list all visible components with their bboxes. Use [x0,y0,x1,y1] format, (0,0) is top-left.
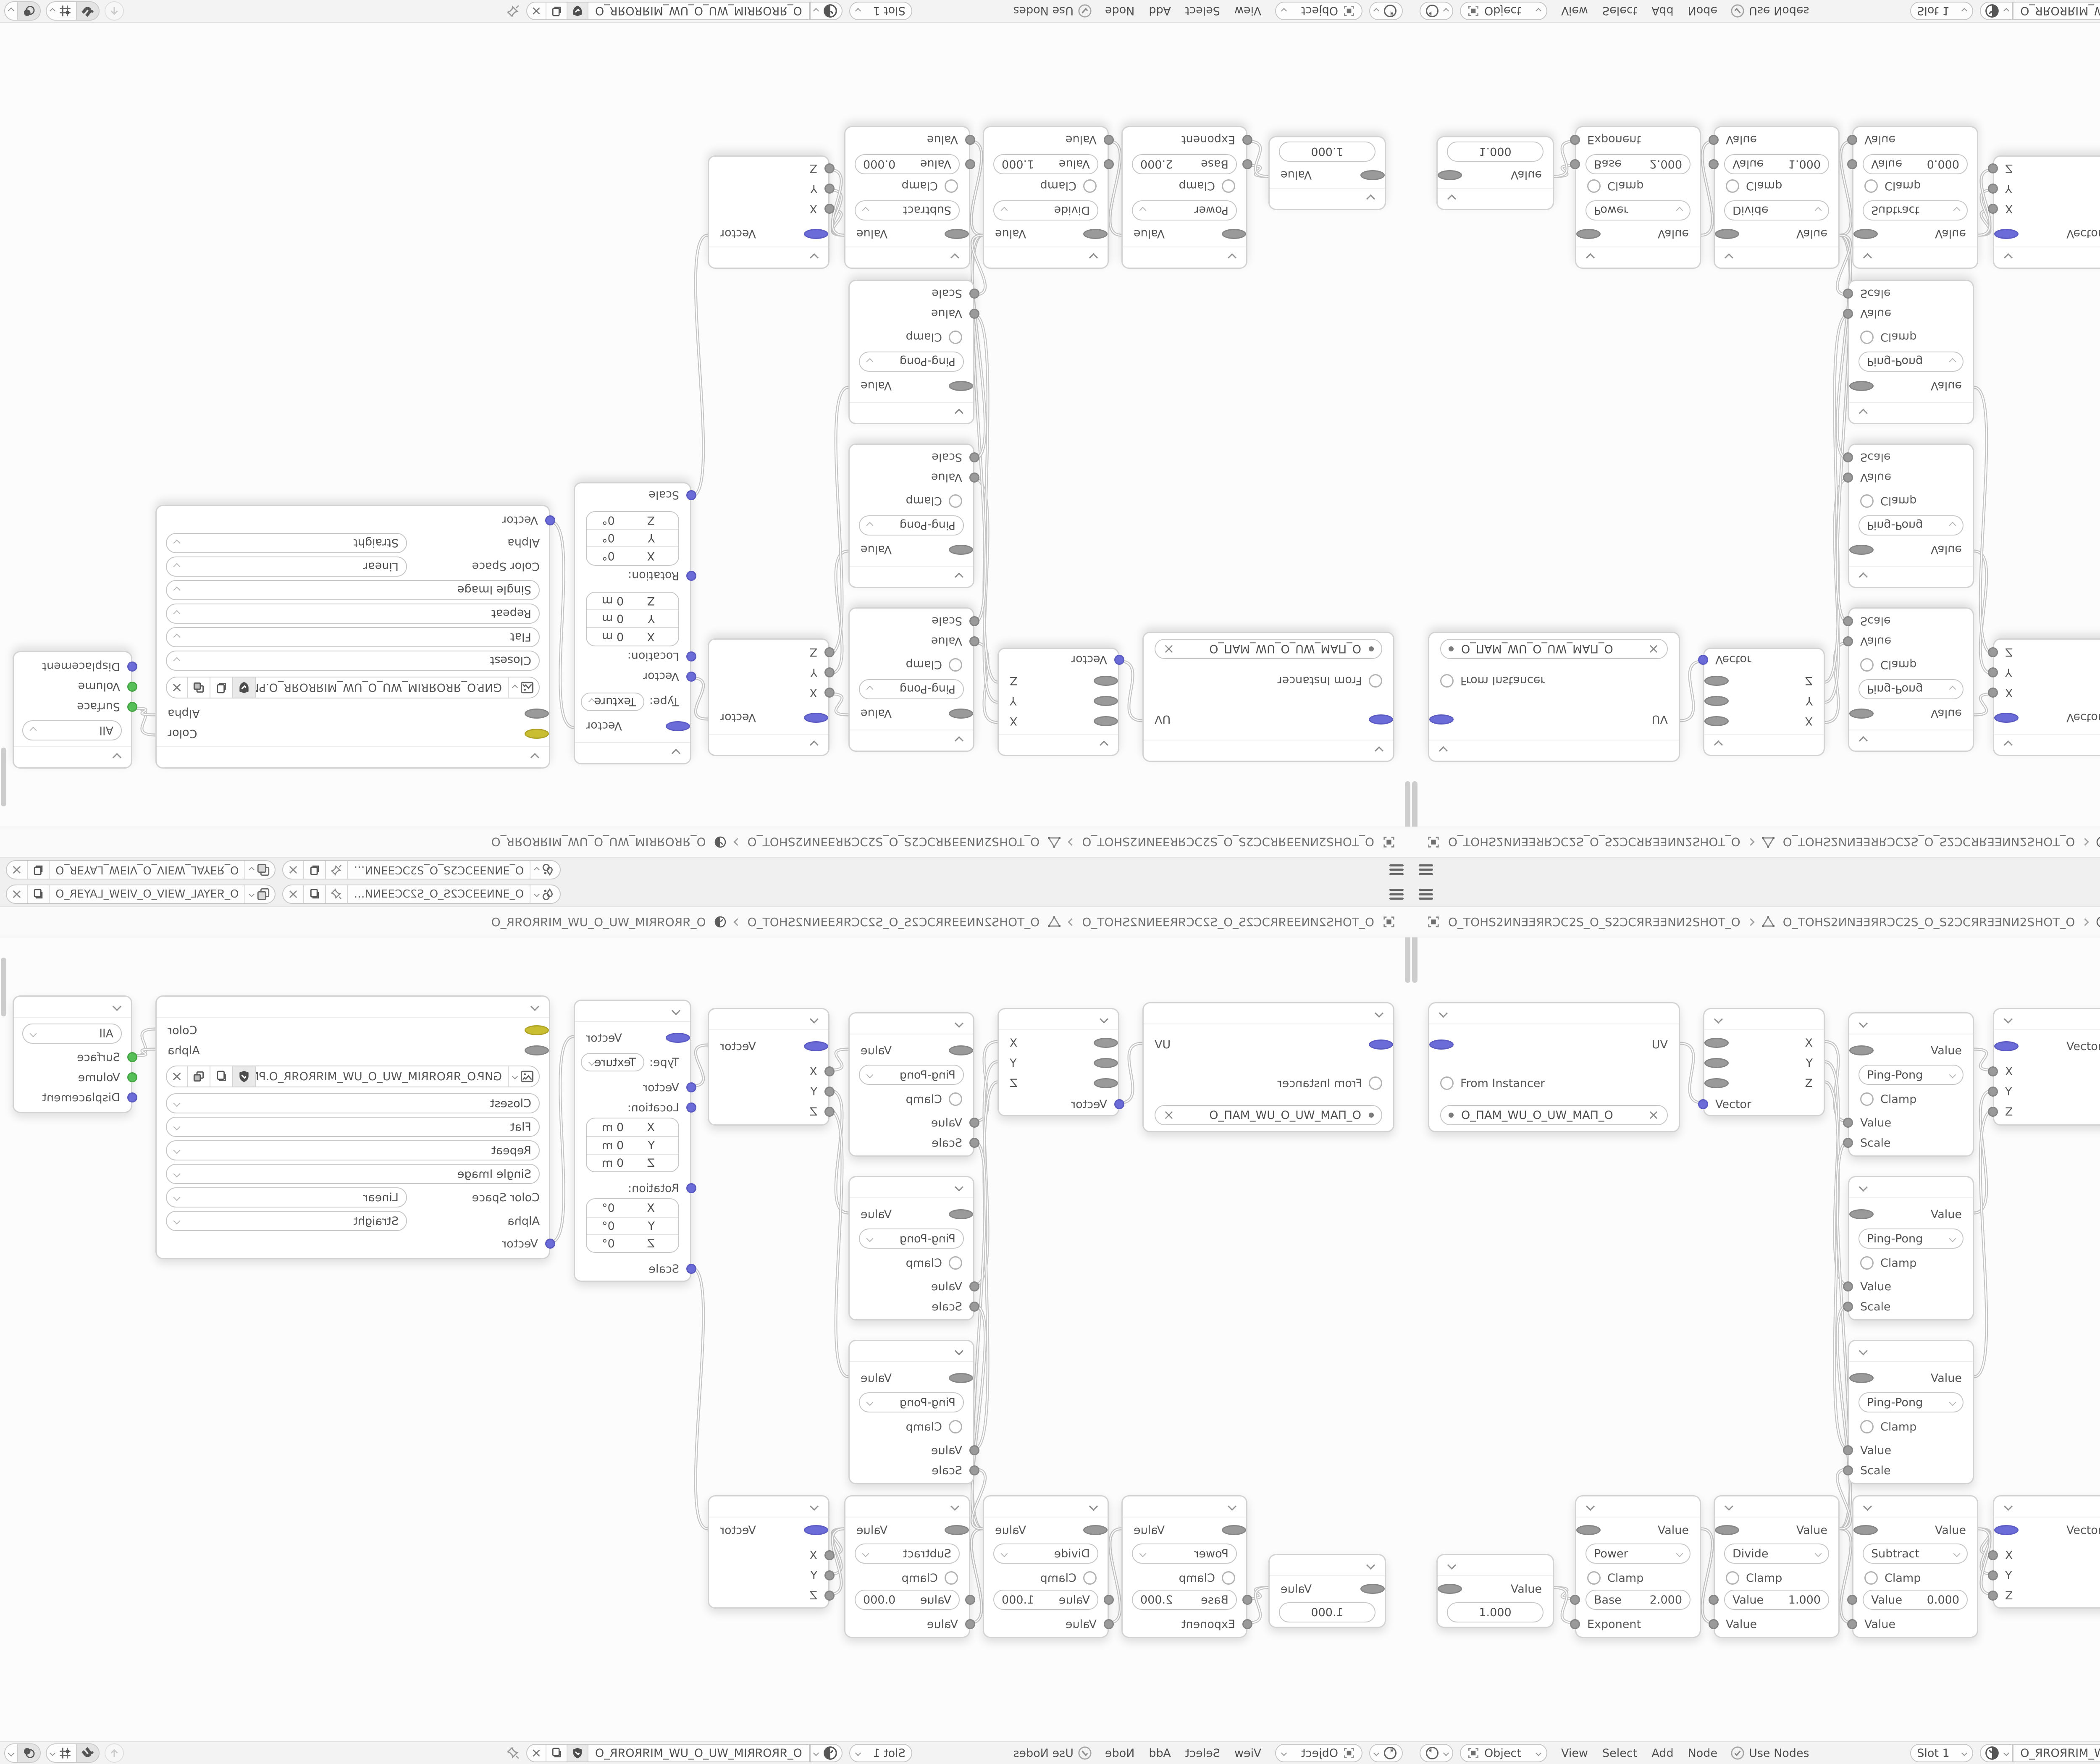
node-header[interactable] [1123,247,1246,268]
rotation-y-field[interactable]: Y0° [587,530,678,547]
breadcrumb-mesh[interactable]: O_TOHS2ИΝƎƎЯRƆC2S_O_S2ƆCЯRƎƎΝИ2SHOT_O [748,835,1040,849]
menu-add[interactable]: Add [1651,1747,1673,1760]
socket-vector-out[interactable] [804,713,828,723]
fake-user-shield-icon[interactable] [567,1745,588,1761]
socket-value1-in[interactable] [1104,1595,1114,1605]
socket-value-out[interactable] [1849,381,1874,391]
mode-dropdown[interactable]: Object [1275,1744,1362,1762]
overlap-toggle-icon[interactable] [18,1744,40,1762]
clamp-checkbox[interactable] [1860,494,1874,508]
operation-dropdown[interactable]: Divide [1724,200,1829,220]
socket-value2-in[interactable] [1709,135,1719,145]
scene-icon[interactable] [530,861,560,879]
operation-dropdown[interactable]: Ping-Pong [1858,1392,1963,1412]
rotation-y-field[interactable]: Y0° [587,1217,678,1234]
socket-value-out[interactable] [945,1525,969,1535]
node-header[interactable] [1994,247,2100,268]
overlap-options-button[interactable] [5,1744,18,1762]
socket-value-in[interactable] [1843,472,1853,483]
pin-icon[interactable] [506,4,520,18]
node-combine-xyz-2[interactable]: Vector X Y Z [1993,1495,2100,1609]
clamp-checkbox[interactable] [949,494,962,508]
socket-scale-in[interactable] [969,452,979,462]
socket-vector-in[interactable] [1698,1099,1708,1109]
clamp-checkbox[interactable] [949,331,962,344]
node-header[interactable] [1123,1496,1246,1517]
socket-displacement-in[interactable] [127,1092,137,1102]
mode-dropdown[interactable]: Object [1275,2,1362,20]
base-field[interactable]: Base2.000 [1585,154,1690,174]
node-header[interactable] [1853,1496,1977,1517]
node-header[interactable] [1994,1496,2100,1517]
mapping-type-dropdown[interactable]: Texture [581,693,644,711]
menu-node[interactable]: Node [1688,1747,1717,1760]
collapse-icon[interactable] [1725,1502,1733,1511]
node-math-power[interactable]: Value Power Clamp Base2.000 Exponent [1575,126,1701,269]
node-header[interactable] [850,1341,973,1362]
use-nodes-checkbox[interactable]: Use Nodes [1013,4,1092,18]
operation-dropdown[interactable]: Ping-Pong [1858,679,1963,699]
collapse-icon[interactable] [2004,1502,2013,1511]
operation-dropdown[interactable]: Subtract [855,200,960,220]
use-nodes-checkbox[interactable]: Use Nodes [1730,4,1809,18]
socket-vector-in[interactable] [1114,655,1124,665]
socket-y-out[interactable] [1094,1058,1118,1068]
location-x-field[interactable]: X0 m [587,1118,678,1136]
output-target-dropdown[interactable]: All [22,720,122,740]
location-y-field[interactable]: Y0 m [587,610,678,628]
collapse-icon[interactable] [1859,1183,1868,1192]
socket-value-out[interactable] [1849,1209,1874,1219]
operation-dropdown[interactable]: Ping-Pong [859,1392,964,1412]
node-header[interactable] [1270,1555,1385,1576]
node-uv-map[interactable]: UV From Instancer O_ПAM_WU_O_UW_MAП_O [1428,1002,1680,1132]
copy-icon[interactable] [28,861,50,879]
menu-add[interactable]: Add [1149,1747,1171,1760]
socket-scale-in[interactable] [1843,616,1853,626]
extension-dropdown[interactable]: Repeat [166,1140,540,1160]
image-datablock-field[interactable]: GИP.O_ЯROЯRIM_WU_O_UW_MIЯROЯR_O.PNG [166,1066,540,1087]
collapse-icon[interactable] [810,1502,819,1511]
breadcrumb-object[interactable]: O_TOHS2ИΝƎƎЯRƆC2S_O_S2ƆCЯRƎƎΝИ2SHOT_O [1448,835,1740,849]
node-header[interactable] [157,997,549,1018]
fake-user-shield-icon[interactable] [233,677,256,698]
menu-view[interactable]: View [1561,1747,1588,1760]
node-uv-map[interactable]: UV From Instancer O_ПAM_WU_O_UW_MAП_O [1142,1002,1394,1132]
collapse-icon[interactable] [950,253,959,262]
socket-value-out[interactable] [949,1209,973,1219]
scene-name[interactable]: O_ƎИΝƎƎƆC2S_O_S2ƆCƎƎΝИ… [348,861,530,879]
close-icon[interactable] [1163,1109,1175,1121]
node-math-ping-pong-2[interactable]: Value Ping-Pong Clamp Value Scale [1848,444,1974,588]
socket-y-out[interactable] [1094,696,1118,706]
node-header[interactable] [1270,188,1385,209]
copy-icon[interactable] [546,3,567,19]
socket-value-out[interactable] [1222,1525,1246,1535]
view-layer-icon[interactable] [245,885,275,903]
operation-dropdown[interactable]: Subtract [1863,1543,1968,1564]
socket-value-out[interactable] [1853,229,1878,239]
collapse-icon[interactable] [1859,1019,1868,1028]
projection-dropdown[interactable]: Flat [166,1117,540,1137]
node-header[interactable] [1704,1009,1824,1030]
node-math-power[interactable]: Value Power Clamp Base2.000 Exponent [1575,1495,1701,1638]
socket-value2-in[interactable] [1709,1619,1719,1629]
node-math-ping-pong-3[interactable]: Value Ping-Pong Clamp Value Scale [848,280,974,424]
node-header[interactable] [575,1001,690,1022]
socket-vector-in[interactable] [545,1239,555,1249]
close-icon[interactable] [283,885,304,903]
clamp-checkbox[interactable] [1860,1092,1874,1106]
socket-value-out[interactable] [1083,229,1108,239]
node-header[interactable] [984,247,1108,268]
socket-z-in[interactable] [824,647,835,657]
node-math-divide[interactable]: Value Divide Clamp Value1.000 Value [983,126,1109,269]
node-header[interactable] [1144,740,1393,761]
duplicate-icon[interactable] [188,677,210,698]
node-header[interactable] [845,247,969,268]
base-field[interactable]: Base2.000 [1585,1590,1690,1610]
menu-icon[interactable] [1419,889,1433,900]
collapse-icon[interactable] [1714,740,1723,749]
socket-vector-out[interactable] [804,229,828,239]
node-header[interactable] [709,247,828,268]
node-material-output[interactable]: All Surface Volume Displacement [13,995,132,1113]
socket-uv-out[interactable] [1429,714,1454,724]
snap-toggle-magnet-icon[interactable] [77,1744,99,1762]
socket-x-in[interactable] [824,1550,835,1560]
node-header[interactable] [1849,1177,1973,1198]
collapse-icon[interactable] [113,1002,121,1011]
node-math-ping-pong-2[interactable]: Value Ping-Pong Clamp Value Scale [848,1176,974,1320]
collapse-icon[interactable] [113,753,121,762]
node-header[interactable] [1849,1013,1973,1034]
socket-base-in[interactable] [1242,159,1252,169]
close-icon[interactable] [1163,643,1175,655]
socket-value1-in[interactable] [1847,159,1857,169]
node-header[interactable] [1576,247,1700,268]
socket-uv-out[interactable] [1369,1039,1393,1050]
node-combine-xyz[interactable]: Vector X Y Z [708,638,829,756]
socket-displacement-in[interactable] [127,661,137,672]
socket-x-in[interactable] [1988,1550,1998,1560]
interpolation-dropdown[interactable]: Closest [166,651,540,671]
breadcrumb-mesh[interactable]: O_TOHS2ИΝƎƎЯRƆC2S_O_S2ƆCЯRƎƎΝИ2SHOT_O [748,915,1040,929]
socket-volume-in[interactable] [127,1072,137,1082]
scene-selector[interactable]: O_ƎИΝƎƎƆC2S_O_S2ƆCƎƎΝИ… [282,885,561,904]
node-header[interactable] [1704,734,1824,755]
socket-base-in[interactable] [1570,159,1580,169]
operation-dropdown[interactable]: Power [1132,1543,1237,1564]
socket-base-in[interactable] [1570,1595,1580,1605]
clamp-checkbox[interactable] [1083,1571,1097,1585]
editor-type-button[interactable] [1420,2,1453,20]
node-uv-map[interactable]: UV From Instancer O_ПAM_WU_O_UW_MAП_O [1142,632,1394,762]
socket-y-in[interactable] [824,184,835,194]
node-header[interactable] [850,566,973,587]
socket-value2-in[interactable] [1104,1619,1114,1629]
node-value[interactable]: Value 1.000 [1436,1554,1554,1628]
socket-z-out[interactable] [1704,1078,1729,1088]
collapse-icon[interactable] [1859,572,1868,581]
socket-scale-in[interactable] [686,490,696,500]
socket-value2-in[interactable] [1847,135,1857,145]
socket-volume-in[interactable] [127,682,137,692]
source-dropdown[interactable]: Single Image [166,580,540,600]
socket-y-in[interactable] [824,1570,835,1580]
collapse-icon[interactable] [1447,194,1456,203]
node-header[interactable] [1849,1341,1973,1362]
operation-dropdown[interactable]: Ping-Pong [1858,1228,1963,1249]
socket-value-out[interactable] [949,709,973,719]
editor-type-button[interactable] [1420,1744,1453,1762]
node-header[interactable] [709,1009,828,1030]
socket-uv-out[interactable] [1429,1039,1454,1050]
socket-value-in[interactable] [969,309,979,319]
value-field[interactable]: Value0.000 [1863,154,1968,174]
material-name-field[interactable]: O_ЯROЯRIM_WU_O_UW_MIЯROЯR_O [2013,1744,2100,1762]
node-header[interactable] [1438,188,1553,209]
breadcrumb-mesh[interactable]: O_TOHS2ИΝƎƎЯRƆC2S_O_S2ƆCЯRƎƎΝИ2SHOT_O [1783,835,2075,849]
operation-dropdown[interactable]: Ping-Pong [1858,1065,1963,1085]
material-name-field[interactable]: O_ЯROЯRIM_WU_O_UW_MIЯROЯR_O [526,1744,810,1762]
socket-vector-in[interactable] [686,1082,696,1092]
socket-z-out[interactable] [1094,676,1118,686]
uv-map-name-field[interactable]: O_ПAM_WU_O_UW_MAП_O [1155,1105,1382,1125]
collapse-icon[interactable] [1586,1502,1595,1511]
socket-x-out[interactable] [1094,716,1118,726]
operation-dropdown[interactable]: Ping-Pong [1858,352,1963,372]
socket-y-out[interactable] [1704,696,1729,706]
socket-z-in[interactable] [1988,1591,1998,1601]
socket-z-in[interactable] [1988,163,1998,173]
breadcrumb-object[interactable]: O_TOHS2ИΝƎƎЯRƆC2S_O_S2ƆCЯRƎƎΝИ2SHOT_O [1082,835,1374,849]
menu-select[interactable]: Select [1185,5,1220,18]
node-header[interactable] [1849,566,1973,587]
socket-vector-in[interactable] [1698,655,1708,665]
location-y-field[interactable]: Y0 m [587,1136,678,1154]
clamp-checkbox[interactable] [945,1571,958,1585]
node-header[interactable] [850,1013,973,1034]
close-icon[interactable] [527,3,546,19]
node-header[interactable] [1849,730,1973,751]
node-header[interactable] [999,734,1118,755]
socket-value2-in[interactable] [965,1619,975,1629]
clamp-checkbox[interactable] [1587,179,1601,193]
node-separate-xyz[interactable]: X Y Z Vector [1703,648,1825,756]
node-combine-xyz-2[interactable]: Vector X Y Z [1993,155,2100,269]
rotation-z-field[interactable]: Z0° [587,1234,678,1252]
socket-x-in[interactable] [824,688,835,698]
socket-y-in[interactable] [824,1087,835,1097]
socket-scale-in[interactable] [969,616,979,626]
from-instancer-checkbox[interactable] [1369,674,1382,688]
from-instancer-checkbox[interactable] [1369,1076,1382,1090]
clamp-checkbox[interactable] [945,179,958,193]
scrollbar-right[interactable] [1,748,6,806]
scrollbar-right[interactable] [1,958,6,1016]
material-name-field[interactable]: O_ЯROЯRIM_WU_O_UW_MIЯROЯR_O [2013,2,2100,20]
socket-value1-in[interactable] [1709,159,1719,169]
node-math-power[interactable]: Value Power Clamp Base2.000 Exponent [1121,126,1247,269]
socket-vector-out[interactable] [804,1041,828,1051]
collapse-icon[interactable] [672,749,680,758]
mapping-type-dropdown[interactable]: Texture [581,1053,644,1071]
value-field[interactable]: Value1.000 [993,1590,1098,1610]
operation-dropdown[interactable]: Ping-Pong [1858,515,1963,535]
node-header[interactable] [845,1496,969,1517]
slot-dropdown[interactable]: Slot 1 [1910,2,1973,20]
socket-value-out[interactable] [1849,709,1874,719]
operation-dropdown[interactable]: Divide [993,1543,1098,1564]
close-icon[interactable] [167,677,188,698]
node-math-ping-pong-1[interactable]: Value Ping-Pong Clamp Value Scale [1848,607,1974,752]
collapse-icon[interactable] [1863,1502,1872,1511]
socket-x-in[interactable] [1988,1066,1998,1076]
location-z-field[interactable]: Z0 m [587,593,678,610]
node-header[interactable] [157,746,549,767]
socket-vector-out[interactable] [666,1033,690,1043]
socket-x-in[interactable] [1988,204,1998,214]
node-header[interactable] [709,1496,828,1517]
socket-value-in[interactable] [969,472,979,483]
socket-x-in[interactable] [1988,688,1998,698]
socket-value1-in[interactable] [1709,1595,1719,1605]
interpolation-dropdown[interactable]: Closest [166,1093,540,1113]
node-header[interactable] [14,746,131,767]
material-browse-button[interactable] [810,1744,843,1762]
operation-dropdown[interactable]: Ping-Pong [859,1228,964,1249]
breadcrumb-material[interactable]: O_ЯROЯRIM_WU_O_UW_MIЯROЯR_O [491,835,706,849]
node-header[interactable] [1429,740,1679,761]
socket-exponent-in[interactable] [1570,135,1580,145]
value-field[interactable]: Value1.000 [1724,154,1829,174]
image-filename[interactable]: GИP.O_ЯROЯRIM_WU_O_UW_MIЯROЯR_O.PNG [256,677,509,698]
socket-z-in[interactable] [1988,1107,1998,1117]
socket-uv-out[interactable] [1369,714,1393,724]
snap-options-button[interactable] [47,2,77,20]
editor-type-button[interactable] [1369,1744,1403,1762]
editor-type-button[interactable] [1369,2,1403,20]
menu-view[interactable]: View [1234,1747,1261,1760]
menu-icon[interactable] [1389,889,1404,900]
socket-value-in[interactable] [1843,1281,1853,1291]
socket-value-out[interactable] [949,381,973,391]
socket-value-out[interactable] [1853,1525,1878,1535]
socket-value-out[interactable] [1849,1373,1874,1383]
value-field[interactable]: 1.000 [1279,1602,1375,1622]
socket-y-in[interactable] [824,667,835,677]
node-math-divide[interactable]: Value Divide Clamp Value1.000 Value [983,1495,1109,1638]
slot-dropdown[interactable]: Slot 1 [1910,1744,1973,1762]
socket-surface-in[interactable] [127,1052,137,1062]
menu-node[interactable]: Node [1105,5,1134,18]
node-math-power[interactable]: Value Power Clamp Base2.000 Exponent [1121,1495,1247,1638]
node-math-divide[interactable]: Value Divide Clamp Value1.000 Value [1714,126,1840,269]
node-header[interactable] [984,1496,1108,1517]
socket-x-in[interactable] [824,1066,835,1076]
copy-icon[interactable] [210,677,233,698]
node-math-subtract[interactable]: Value Subtract Clamp Value0.000 Value [844,126,970,269]
output-target-dropdown[interactable]: All [22,1024,122,1044]
socket-value-out[interactable] [949,1045,973,1055]
node-header[interactable] [1144,1003,1393,1024]
socket-value-in[interactable] [1843,636,1853,646]
socket-value2-in[interactable] [1104,135,1114,145]
node-math-ping-pong-3[interactable]: Value Ping-Pong Clamp Value Scale [1848,280,1974,424]
auto-render-button[interactable] [105,1743,124,1763]
menu-view[interactable]: View [1234,5,1261,18]
uv-map-name-field[interactable]: O_ПAM_WU_O_UW_MAП_O [1155,639,1382,659]
socket-value1-in[interactable] [965,1595,975,1605]
overlap-options-button[interactable] [5,2,18,20]
socket-exponent-in[interactable] [1242,135,1252,145]
view-layer-icon[interactable] [245,861,275,879]
collapse-icon[interactable] [955,572,963,581]
clamp-checkbox[interactable] [1864,179,1878,193]
collapse-icon[interactable] [955,1347,963,1355]
socket-exponent-in[interactable] [1242,1619,1252,1629]
socket-z-out[interactable] [1704,676,1729,686]
socket-value-out[interactable] [1222,229,1246,239]
value-field[interactable]: Value1.000 [993,154,1098,174]
collapse-icon[interactable] [1439,746,1448,755]
copy-icon[interactable] [210,1066,233,1087]
node-header[interactable] [1576,1496,1700,1517]
view-layer-selector[interactable]: O_ЯƎYAL_WƎIV_O_VIƎW_LAYƎR_O [6,885,276,904]
node-math-ping-pong-3[interactable]: Value Ping-Pong Clamp Value Scale [848,1340,974,1484]
image-filename[interactable]: GИP.O_ЯROЯRIM_WU_O_UW_MIЯROЯR_O.PNG [256,1066,509,1087]
uv-map-name-field[interactable]: O_ПAM_WU_O_UW_MAП_O [1440,1105,1668,1125]
clamp-checkbox[interactable] [949,1256,962,1270]
node-image-texture[interactable]: Color Alpha GИP.O_ЯROЯRIM_WU_O_UW_MIЯROЯ… [155,505,550,769]
node-value[interactable]: Value 1.000 [1268,1554,1386,1628]
clamp-checkbox[interactable] [1860,658,1874,672]
value-field[interactable]: Value0.000 [855,1590,960,1610]
rotation-z-field[interactable]: Z0° [587,512,678,530]
socket-y-in[interactable] [1988,1087,1998,1097]
socket-value-out[interactable] [1849,545,1874,555]
collapse-icon[interactable] [1228,1502,1236,1511]
snap-toggle-magnet-icon[interactable] [77,2,99,20]
clamp-checkbox[interactable] [1860,1420,1874,1433]
alpha-mode-dropdown[interactable]: Straight [166,533,407,553]
menu-node[interactable]: Node [1688,5,1717,18]
scene-selector[interactable]: O_ƎИΝƎƎƆC2S_O_S2ƆCƎƎΝИ… [282,860,561,879]
close-icon[interactable] [167,1066,188,1087]
node-math-subtract[interactable]: Value Subtract Clamp Value0.000 Value [1852,1495,1978,1638]
socket-exponent-in[interactable] [1570,1619,1580,1629]
material-browse-button[interactable] [810,2,843,20]
node-math-ping-pong-2[interactable]: Value Ping-Pong Clamp Value Scale [848,444,974,588]
collapse-icon[interactable] [1366,194,1375,203]
collapse-icon[interactable] [1859,409,1868,417]
material-name[interactable]: O_ЯROЯRIM_WU_O_UW_MIЯROЯR_O [2013,1745,2100,1761]
socket-value2-in[interactable] [1847,1619,1857,1629]
menu-node[interactable]: Node [1105,1747,1134,1760]
image-icon[interactable] [509,677,539,698]
socket-value-out[interactable] [945,229,969,239]
node-material-output[interactable]: All Surface Volume Displacement [13,651,132,769]
socket-vector-out[interactable] [804,1525,828,1535]
material-name[interactable]: O_ЯROЯRIM_WU_O_UW_MIЯROЯR_O [2013,3,2100,19]
socket-value-in[interactable] [969,1445,979,1455]
operation-dropdown[interactable]: Subtract [1863,200,1968,220]
material-browse-button[interactable] [1980,2,2013,20]
base-field[interactable]: Base2.000 [1132,1590,1237,1610]
socket-rotation-in[interactable] [686,571,696,581]
node-separate-xyz[interactable]: X Y Z Vector [1703,1008,1825,1116]
